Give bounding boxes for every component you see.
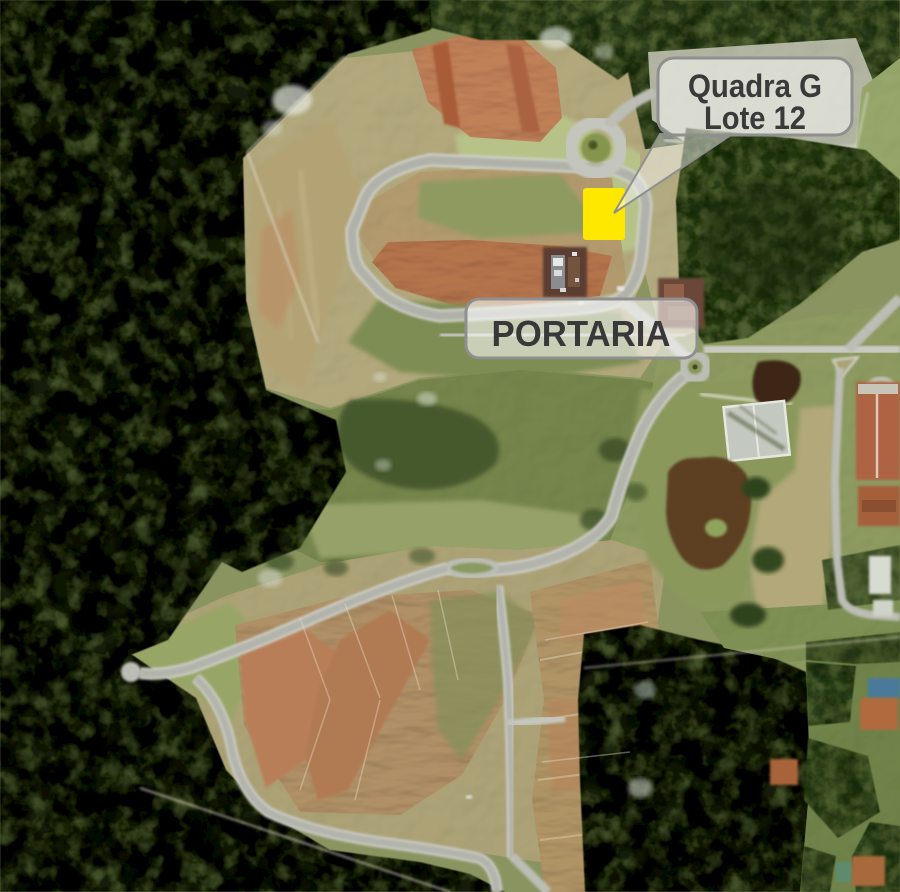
- svg-text:Quadra G: Quadra G: [688, 68, 822, 104]
- svg-text:PORTARIA: PORTARIA: [492, 313, 671, 354]
- svg-text:Lote 12: Lote 12: [704, 100, 806, 136]
